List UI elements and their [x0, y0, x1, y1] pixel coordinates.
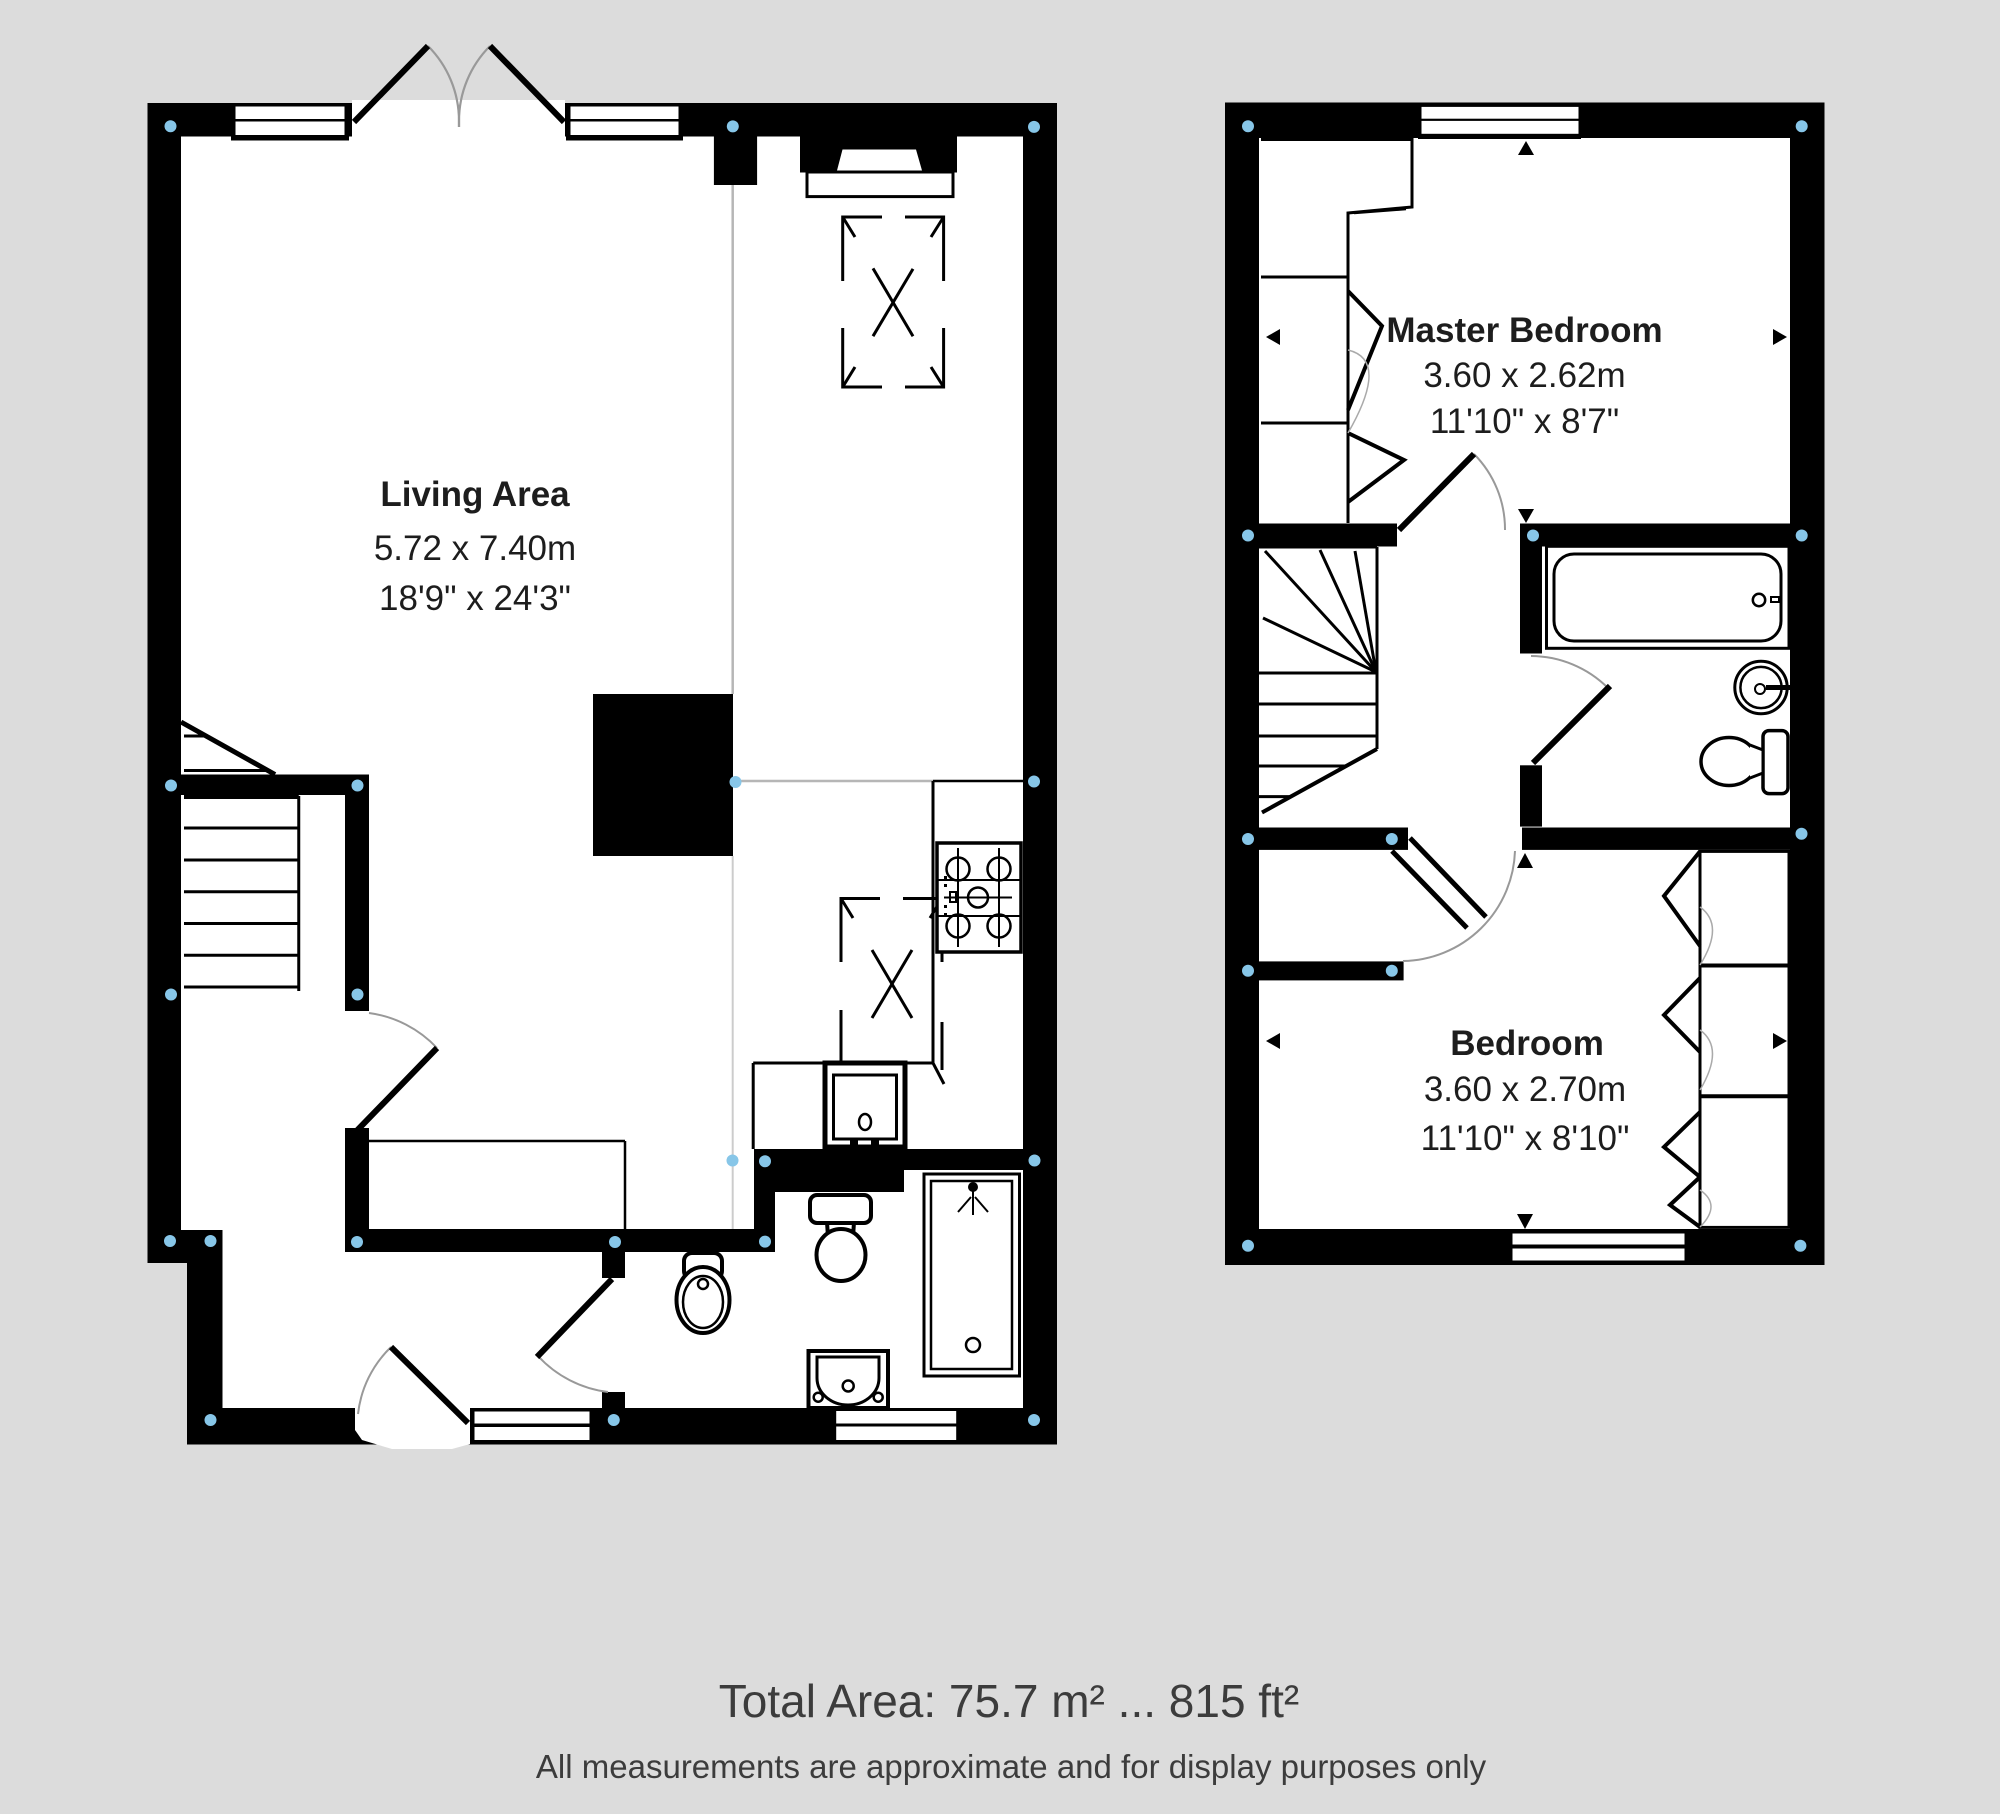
svg-text:Master Bedroom: Master Bedroom — [1386, 311, 1662, 350]
svg-text:Total Area: 75.7 m² ... 815 ft: Total Area: 75.7 m² ... 815 ft² — [719, 1675, 1299, 1727]
svg-text:11'10" x 8'10": 11'10" x 8'10" — [1421, 1119, 1630, 1158]
svg-text:Bedroom: Bedroom — [1450, 1024, 1604, 1063]
svg-text:3.60 x 2.70m: 3.60 x 2.70m — [1424, 1070, 1626, 1109]
svg-text:All measurements are approxima: All measurements are approximate and for… — [536, 1748, 1487, 1785]
svg-text:3.60 x 2.62m: 3.60 x 2.62m — [1423, 356, 1625, 395]
svg-text:Living Area: Living Area — [380, 475, 570, 514]
svg-text:5.72 x 7.40m: 5.72 x 7.40m — [374, 529, 576, 568]
svg-text:18'9" x 24'3": 18'9" x 24'3" — [379, 579, 571, 618]
svg-text:11'10" x 8'7": 11'10" x 8'7" — [1430, 402, 1619, 441]
